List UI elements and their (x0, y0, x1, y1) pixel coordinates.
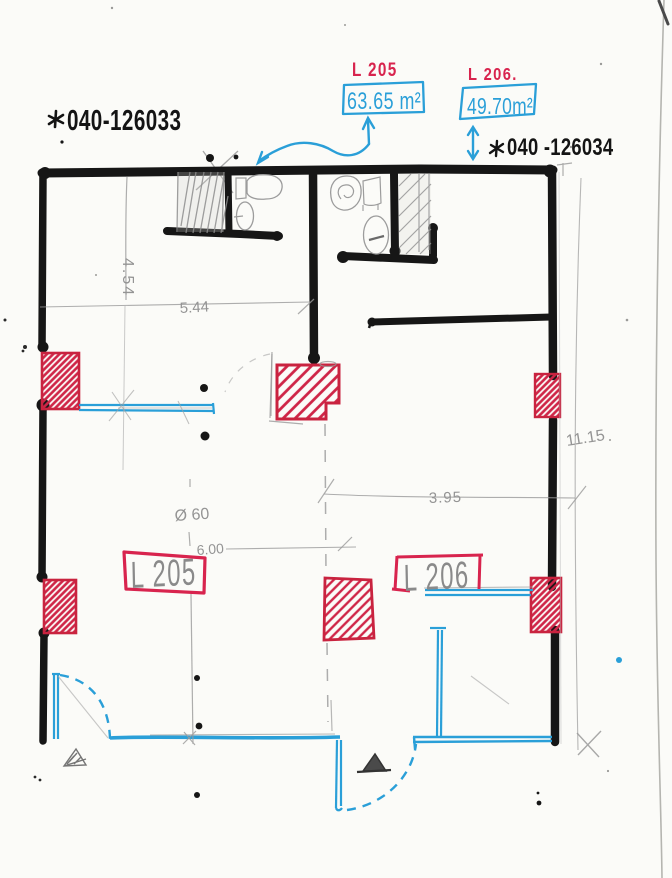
svg-text:3.95: 3.95 (429, 489, 463, 507)
svg-text:Ø 60: Ø 60 (174, 506, 210, 525)
svg-text:63.65 m²: 63.65 m² (347, 89, 421, 115)
svg-text:6.00: 6.00 (196, 540, 225, 558)
svg-text:040 -126034: 040 -126034 (507, 135, 613, 161)
svg-text:L 206: L 206 (403, 553, 470, 600)
svg-text:040-126033: 040-126033 (67, 105, 181, 137)
svg-text:49.70m²: 49.70m² (467, 94, 533, 120)
svg-text:L 205: L 205 (130, 550, 197, 597)
svg-text:L 206.: L 206. (468, 65, 518, 85)
svg-text:5.44: 5.44 (179, 298, 209, 317)
svg-text:4.54: 4.54 (119, 258, 136, 297)
svg-text:L 205: L 205 (352, 58, 398, 80)
